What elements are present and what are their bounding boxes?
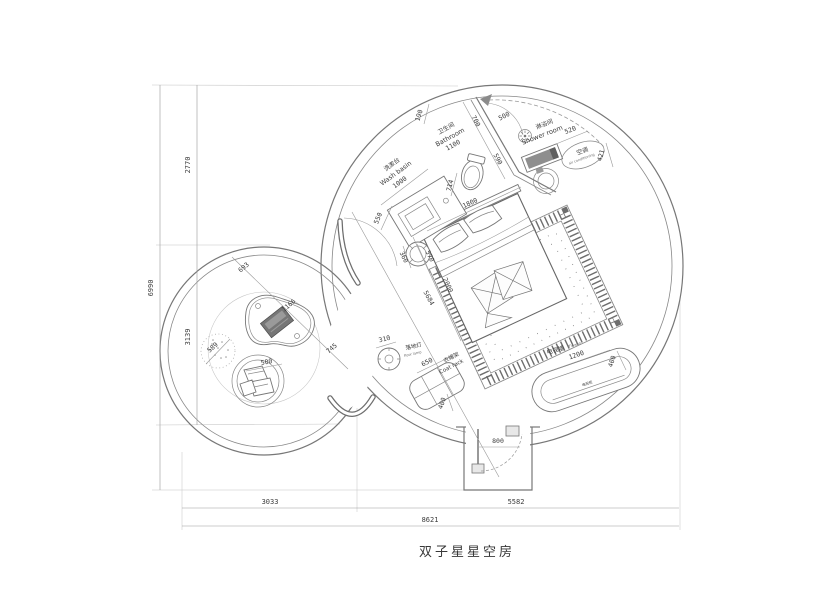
floor-lamp xyxy=(378,348,400,370)
tv-cabinet: 电视柜 xyxy=(527,343,646,417)
pillow-circle xyxy=(232,355,284,407)
bathroom-partition xyxy=(471,94,556,195)
dim-height-lower: 3139 xyxy=(184,329,192,346)
dim-shower-bench: 520 xyxy=(563,124,577,136)
dim-width-right: 5582 xyxy=(508,498,525,506)
dim-toilet-width: 714 xyxy=(445,179,456,192)
dim-room-diagonal: 5684 xyxy=(421,289,436,307)
door-stop-box xyxy=(472,464,484,473)
interior-dim-lines xyxy=(203,99,629,480)
dim-pod-seg-a: 693 xyxy=(237,261,251,275)
floor-plan-page: 电视柜 xyxy=(0,0,837,592)
dim-width-left: 3033 xyxy=(262,498,279,506)
dim-total-height: 6990 xyxy=(147,280,155,297)
dim-coatrack-width: 650 xyxy=(420,356,434,368)
dim-total-width: 8621 xyxy=(422,516,439,524)
dim-vanity-side: 550 xyxy=(372,211,384,225)
toilet xyxy=(458,153,487,192)
floor-drain xyxy=(534,167,559,194)
dim-top-offset: 190 xyxy=(414,109,425,123)
door-hinge-box xyxy=(506,426,519,436)
drawing-title: 双子星星空房 xyxy=(419,544,515,560)
bottom-dimension-lines: 3033 5582 8621 xyxy=(179,498,682,529)
dim-height-upper: 2770 xyxy=(184,157,192,174)
dim-door-width: 800 xyxy=(492,437,504,445)
dim-ticks xyxy=(203,99,629,480)
passage-door-swing-arc xyxy=(344,218,397,266)
floor-plan-drawing: 电视柜 xyxy=(0,0,837,592)
dim-ac-clearance: 421 xyxy=(596,149,607,163)
dim-pouf-dia: 589 xyxy=(206,341,220,355)
dim-pillow-circle: 500 xyxy=(260,357,273,367)
dim-lamp-dia: 310 xyxy=(378,334,391,345)
